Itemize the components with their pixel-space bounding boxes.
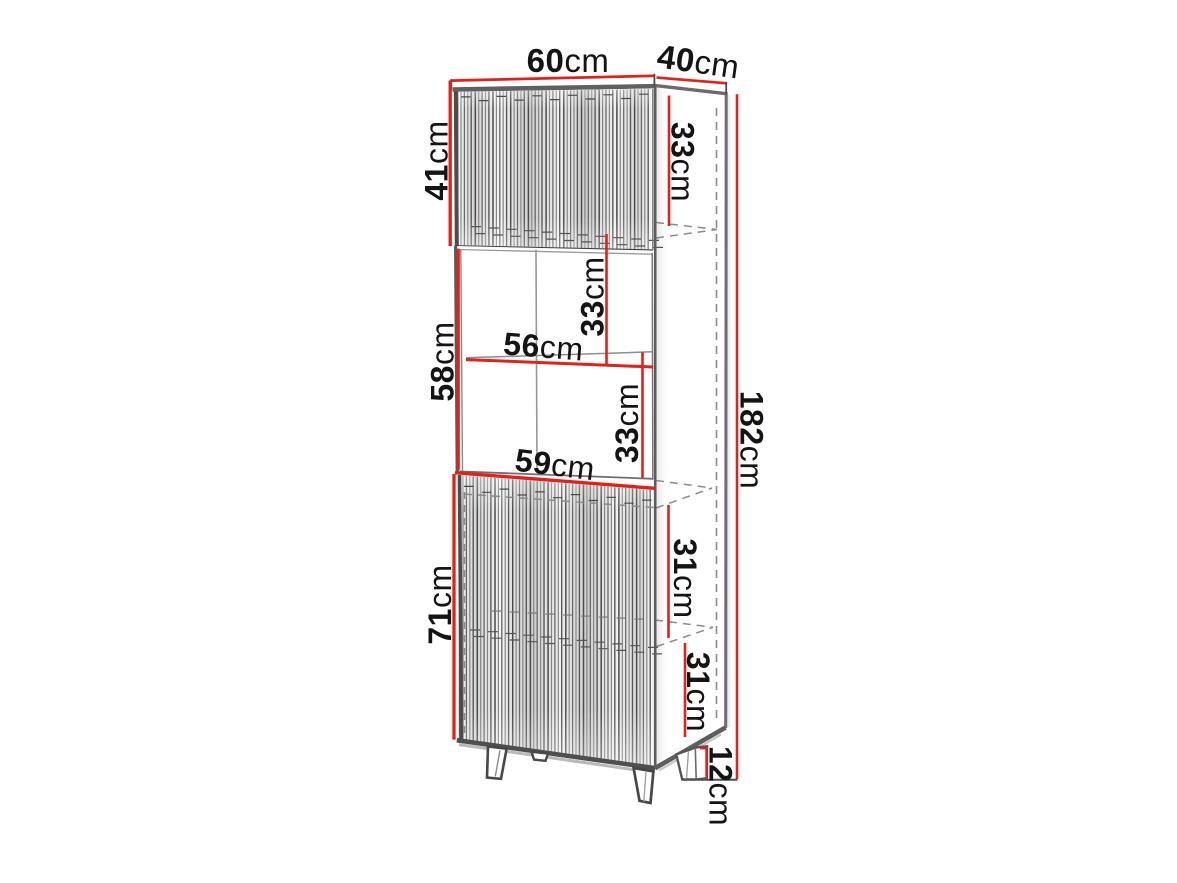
svg-text:41cm: 41cm xyxy=(419,120,455,200)
svg-text:33cm: 33cm xyxy=(575,256,611,336)
svg-text:56cm: 56cm xyxy=(502,325,585,367)
svg-text:182cm: 182cm xyxy=(734,391,770,490)
svg-text:71cm: 71cm xyxy=(422,564,458,644)
svg-text:33cm: 33cm xyxy=(609,383,645,463)
svg-text:33cm: 33cm xyxy=(665,122,701,202)
svg-text:60cm: 60cm xyxy=(527,42,610,79)
svg-text:31cm: 31cm xyxy=(667,538,703,618)
svg-text:31cm: 31cm xyxy=(680,652,716,732)
svg-text:12cm: 12cm xyxy=(703,746,739,826)
svg-text:58cm: 58cm xyxy=(425,321,461,401)
